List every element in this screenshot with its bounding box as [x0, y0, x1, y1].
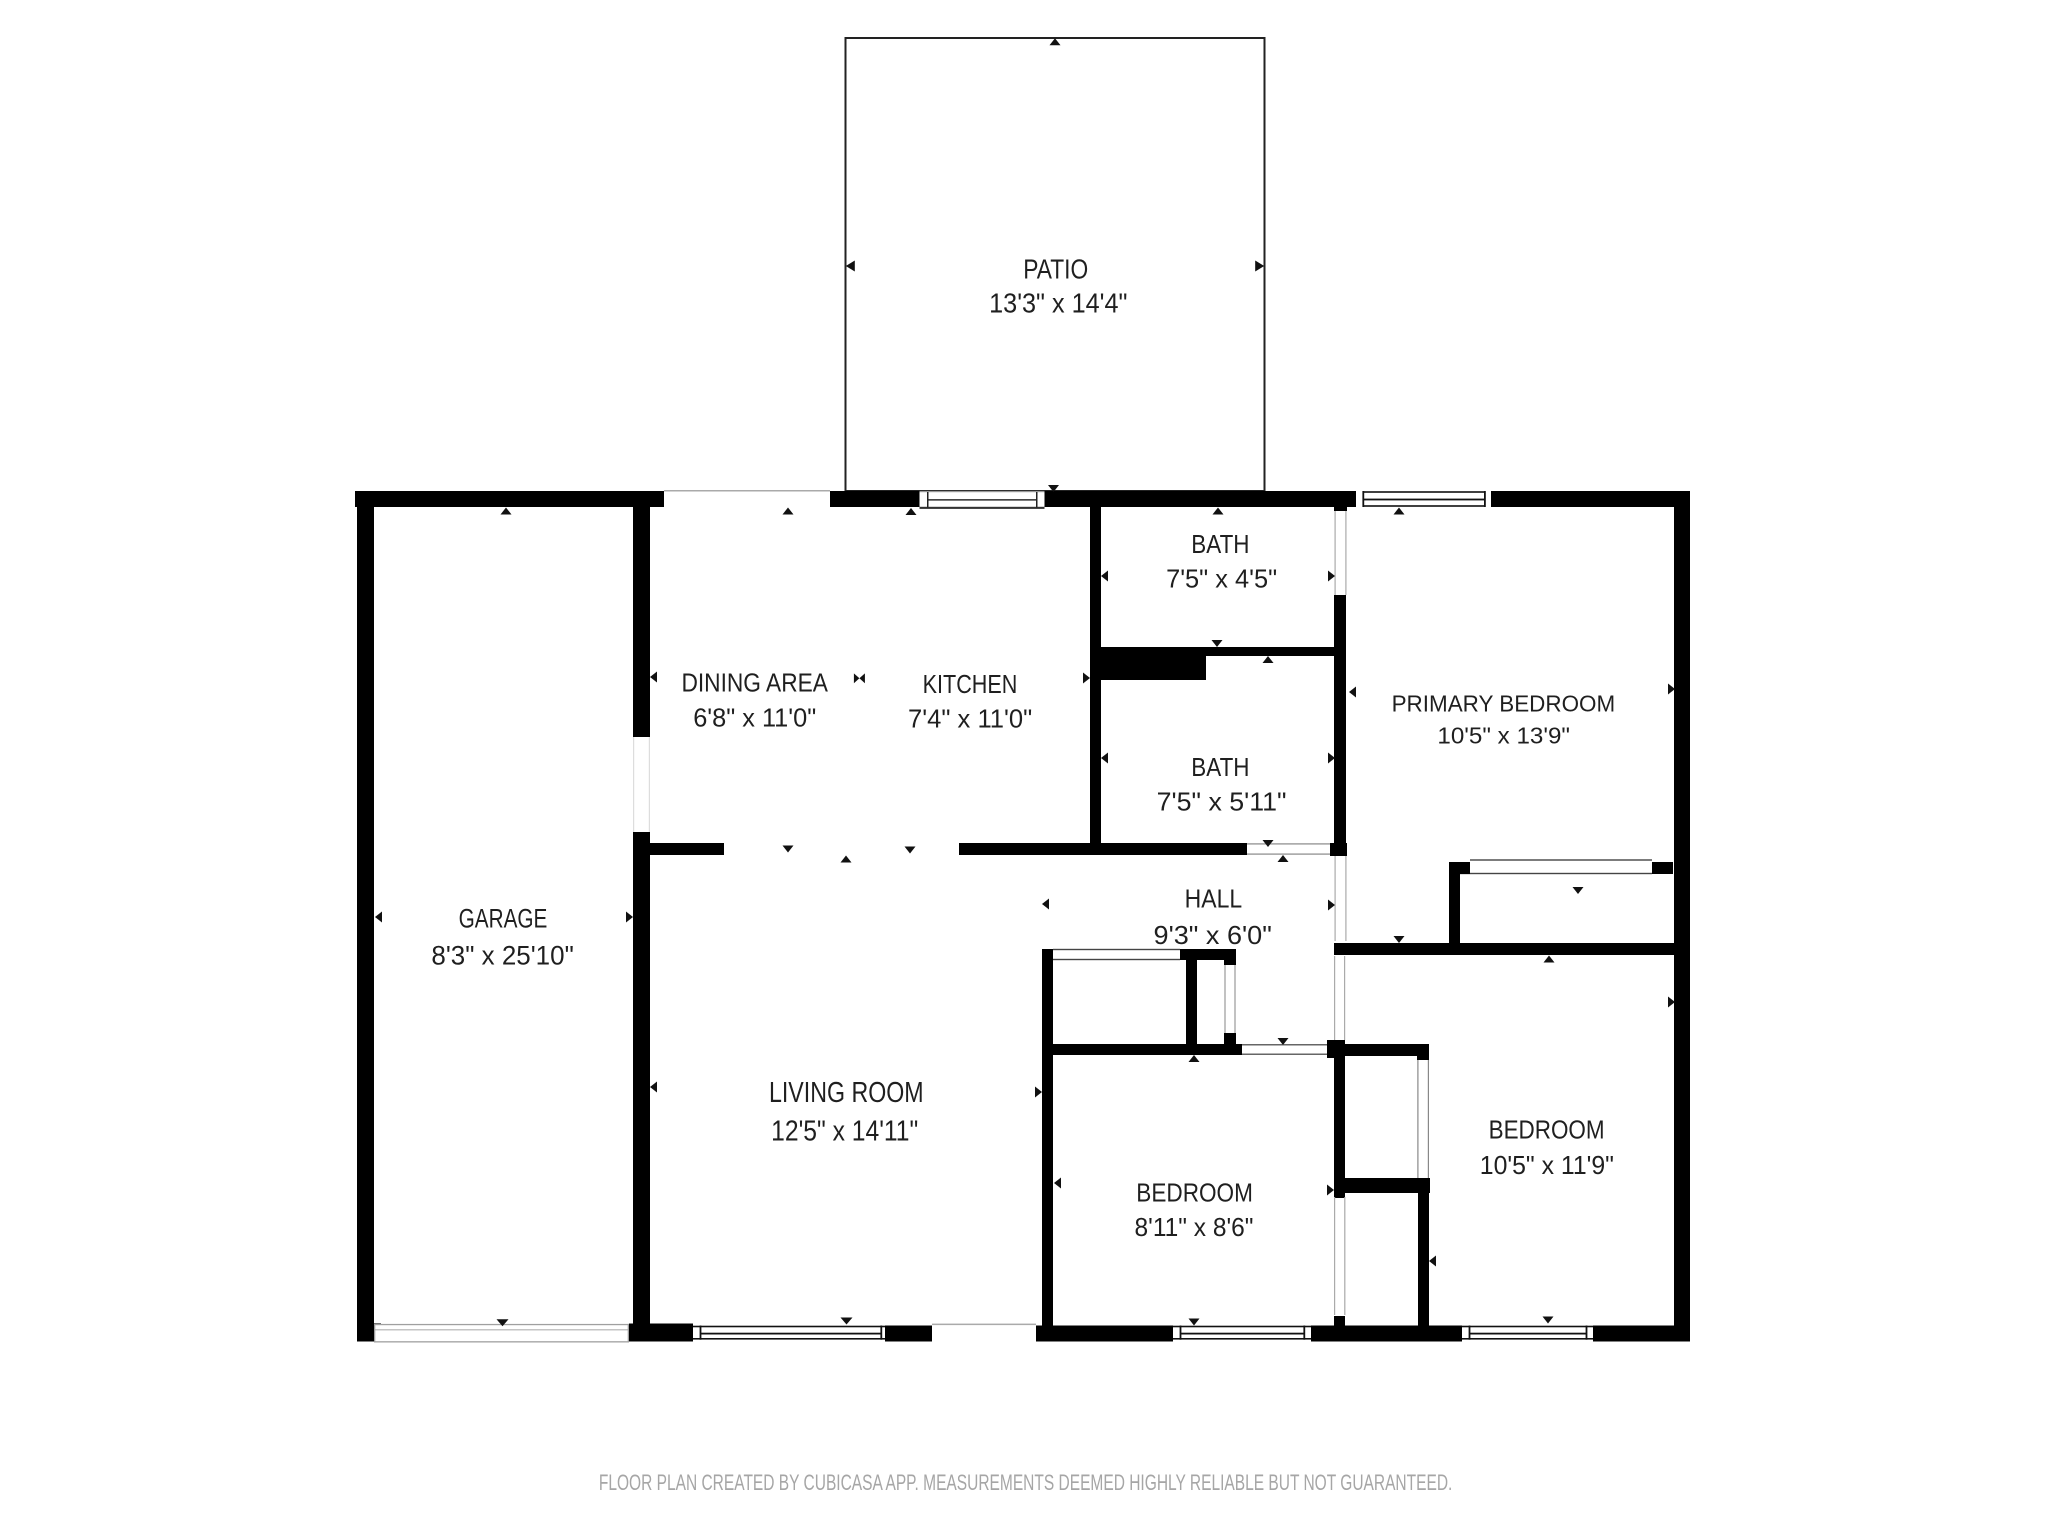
- svg-text:HALL: HALL: [1185, 885, 1243, 913]
- svg-text:10'5" x 11'9": 10'5" x 11'9": [1480, 1152, 1614, 1180]
- svg-text:10'5" x 13'9": 10'5" x 13'9": [1437, 723, 1570, 749]
- svg-text:GARAGE: GARAGE: [459, 904, 548, 934]
- svg-text:12'5" x 14'11": 12'5" x 14'11": [771, 1115, 918, 1147]
- svg-text:FLOOR PLAN CREATED BY CUBICASA: FLOOR PLAN CREATED BY CUBICASA APP. MEAS…: [599, 1470, 1453, 1495]
- svg-text:7'4" x 11'0": 7'4" x 11'0": [908, 705, 1032, 733]
- svg-text:9'3" x 6'0": 9'3" x 6'0": [1154, 922, 1272, 950]
- svg-text:6'8" x 11'0": 6'8" x 11'0": [693, 704, 816, 732]
- svg-text:BATH: BATH: [1191, 531, 1249, 559]
- svg-text:BEDROOM: BEDROOM: [1136, 1180, 1253, 1208]
- svg-text:13'3" x 14'4": 13'3" x 14'4": [989, 288, 1127, 319]
- svg-text:LIVING ROOM: LIVING ROOM: [769, 1077, 924, 1109]
- svg-text:DINING AREA: DINING AREA: [681, 669, 828, 697]
- svg-text:BEDROOM: BEDROOM: [1489, 1117, 1605, 1145]
- svg-text:KITCHEN: KITCHEN: [923, 671, 1018, 699]
- svg-text:7'5" x 5'11": 7'5" x 5'11": [1157, 788, 1287, 816]
- svg-text:PRIMARY BEDROOM: PRIMARY BEDROOM: [1392, 690, 1616, 716]
- svg-text:7'5" x 4'5": 7'5" x 4'5": [1166, 566, 1277, 594]
- svg-text:BATH: BATH: [1191, 754, 1249, 782]
- svg-text:8'11" x 8'6": 8'11" x 8'6": [1135, 1214, 1254, 1242]
- svg-text:8'3" x 25'10": 8'3" x 25'10": [431, 940, 573, 970]
- svg-text:PATIO: PATIO: [1023, 254, 1088, 285]
